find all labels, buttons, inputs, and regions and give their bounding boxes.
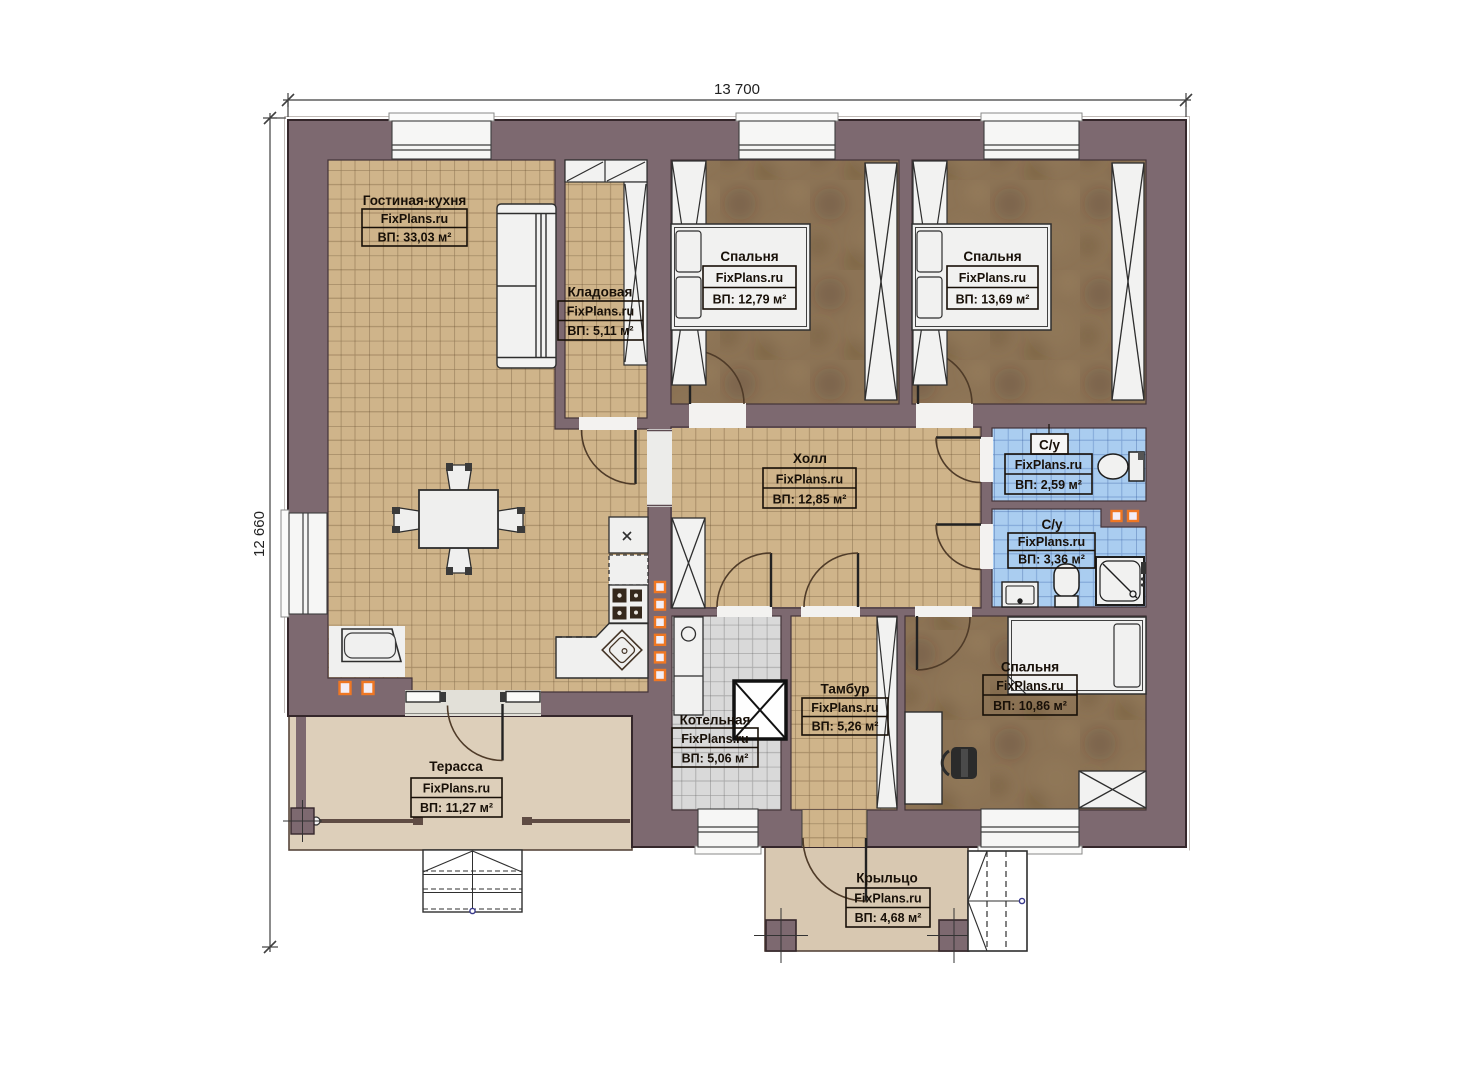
svg-text:Терасса: Терасса xyxy=(429,759,483,774)
svg-text:Гостиная-кухня: Гостиная-кухня xyxy=(363,193,466,208)
svg-text:Спальня: Спальня xyxy=(1001,660,1059,675)
svg-text:ВП: 4,68 м²: ВП: 4,68 м² xyxy=(855,911,922,925)
svg-text:FixPlans.ru: FixPlans.ru xyxy=(996,679,1063,693)
svg-text:Кладовая: Кладовая xyxy=(568,285,633,300)
svg-text:ВП: 5,26 м²: ВП: 5,26 м² xyxy=(812,720,879,734)
svg-text:FixPlans.ru: FixPlans.ru xyxy=(567,305,634,319)
svg-text:FixPlans.ru: FixPlans.ru xyxy=(681,732,748,746)
svg-text:FixPlans.ru: FixPlans.ru xyxy=(1015,458,1082,472)
svg-text:13 700: 13 700 xyxy=(714,81,760,98)
svg-text:ВП: 5,06 м²: ВП: 5,06 м² xyxy=(682,752,749,766)
svg-text:FixPlans.ru: FixPlans.ru xyxy=(811,701,878,715)
svg-text:С/у: С/у xyxy=(1039,438,1061,453)
svg-text:ВП: 3,36 м²: ВП: 3,36 м² xyxy=(1018,553,1085,567)
svg-text:ВП: 2,59 м²: ВП: 2,59 м² xyxy=(1015,478,1082,492)
svg-text:FixPlans.ru: FixPlans.ru xyxy=(381,212,448,226)
svg-text:FixPlans.ru: FixPlans.ru xyxy=(1018,535,1085,549)
svg-text:FixPlans.ru: FixPlans.ru xyxy=(423,782,490,796)
svg-text:ВП: 13,69 м²: ВП: 13,69 м² xyxy=(956,293,1030,307)
svg-text:Холл: Холл xyxy=(793,451,827,466)
svg-text:Котельная: Котельная xyxy=(680,713,751,728)
svg-text:Крыльцо: Крыльцо xyxy=(856,871,917,886)
svg-text:FixPlans.ru: FixPlans.ru xyxy=(716,271,783,285)
svg-text:FixPlans.ru: FixPlans.ru xyxy=(854,892,921,906)
svg-text:ВП: 5,11 м²: ВП: 5,11 м² xyxy=(567,324,633,338)
svg-text:FixPlans.ru: FixPlans.ru xyxy=(959,271,1026,285)
svg-text:ВП: 11,27 м²: ВП: 11,27 м² xyxy=(420,801,493,815)
svg-text:ВП: 12,85 м²: ВП: 12,85 м² xyxy=(773,493,847,507)
svg-text:12 660: 12 660 xyxy=(251,511,268,557)
svg-text:Тамбур: Тамбур xyxy=(821,682,870,697)
svg-text:Спальня: Спальня xyxy=(720,249,778,264)
svg-text:С/у: С/у xyxy=(1041,517,1063,532)
svg-text:FixPlans.ru: FixPlans.ru xyxy=(776,473,843,487)
svg-text:ВП: 33,03 м²: ВП: 33,03 м² xyxy=(378,231,452,245)
svg-text:ВП: 12,79 м²: ВП: 12,79 м² xyxy=(713,293,787,307)
svg-text:ВП: 10,86 м²: ВП: 10,86 м² xyxy=(993,699,1067,713)
svg-text:Спальня: Спальня xyxy=(963,249,1021,264)
